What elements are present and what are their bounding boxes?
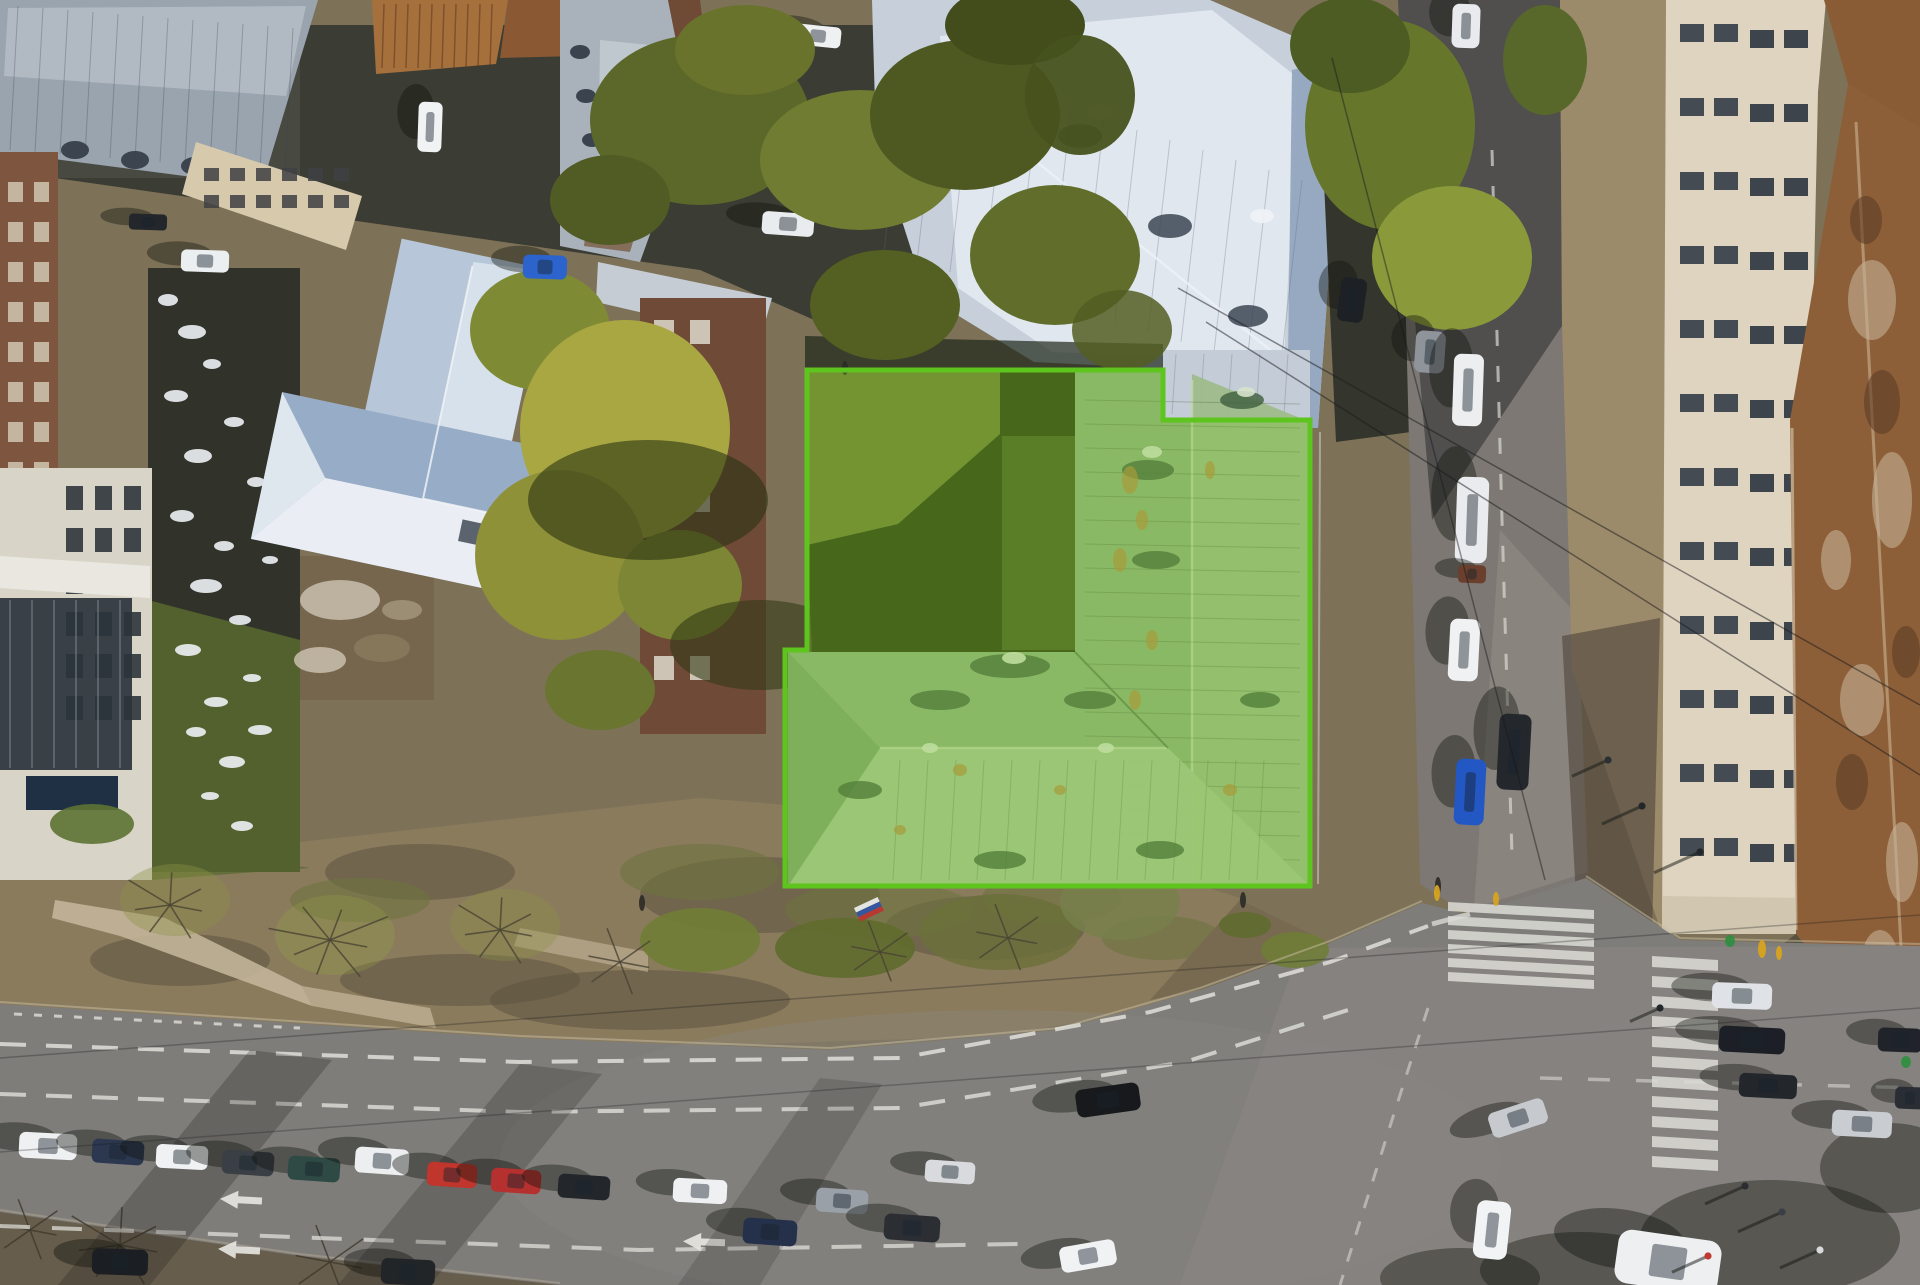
bush-left bbox=[50, 804, 134, 844]
property-highlight bbox=[785, 370, 1310, 886]
roof-rust-a bbox=[372, 0, 508, 74]
storefront-glass bbox=[0, 598, 132, 770]
aerial-photo bbox=[0, 0, 1920, 1285]
scene-canvas bbox=[0, 0, 1920, 1285]
brick-house-left bbox=[0, 152, 58, 502]
garden-grass bbox=[148, 600, 300, 872]
beige-base bbox=[1662, 896, 1800, 934]
debris-yard bbox=[300, 556, 434, 700]
